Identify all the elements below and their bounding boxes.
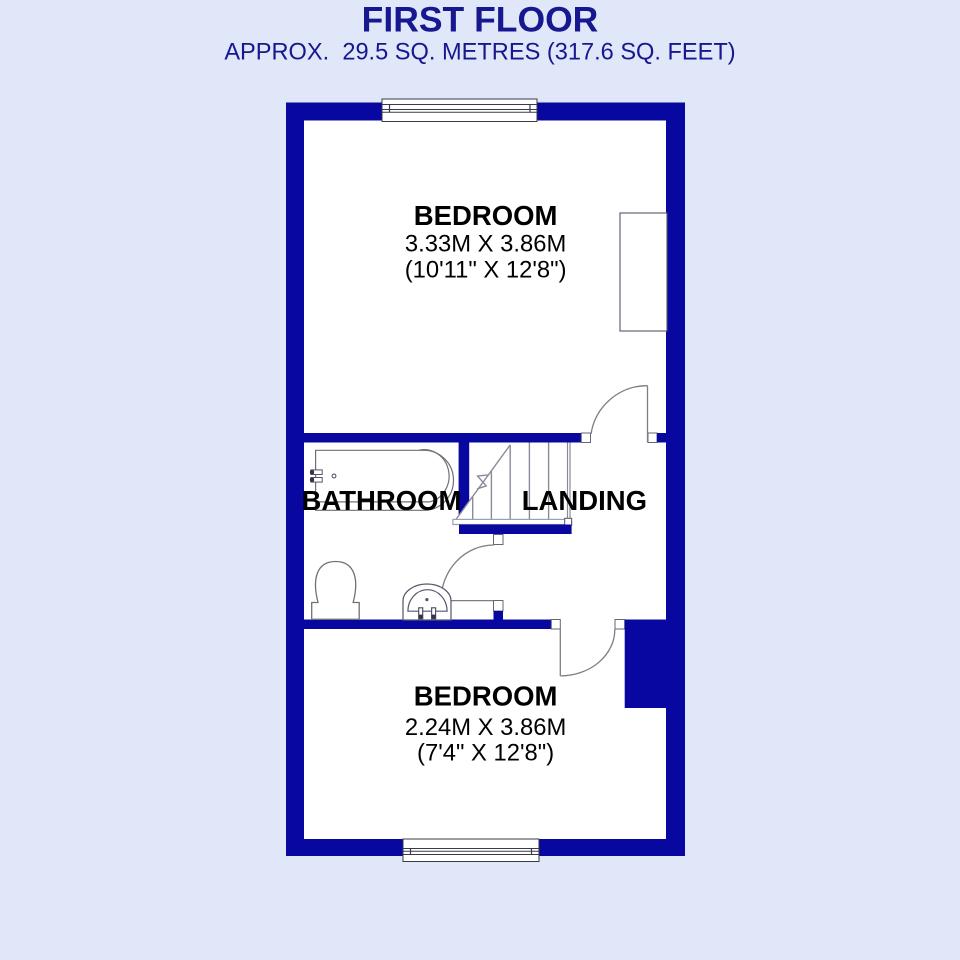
svg-text:BATHROOM: BATHROOM <box>302 485 462 516</box>
svg-text:LANDING: LANDING <box>522 485 647 516</box>
svg-text:BEDROOM: BEDROOM <box>414 681 558 712</box>
svg-text:APPROX. 29.5 SQ. METRES (317.: APPROX. 29.5 SQ. METRES (317.6 SQ. FEET) <box>224 40 735 66</box>
svg-text:3.33M X 3.86M: 3.33M X 3.86M <box>405 231 566 258</box>
svg-text:BEDROOM: BEDROOM <box>414 200 558 231</box>
svg-text:2.24M X 3.86M: 2.24M X 3.86M <box>405 714 566 741</box>
svg-text:(10'11" X 12'8"): (10'11" X 12'8") <box>405 257 567 284</box>
svg-text:(7'4" X 12'8"): (7'4" X 12'8") <box>417 740 554 767</box>
svg-text:FIRST FLOOR: FIRST FLOOR <box>362 0 599 40</box>
